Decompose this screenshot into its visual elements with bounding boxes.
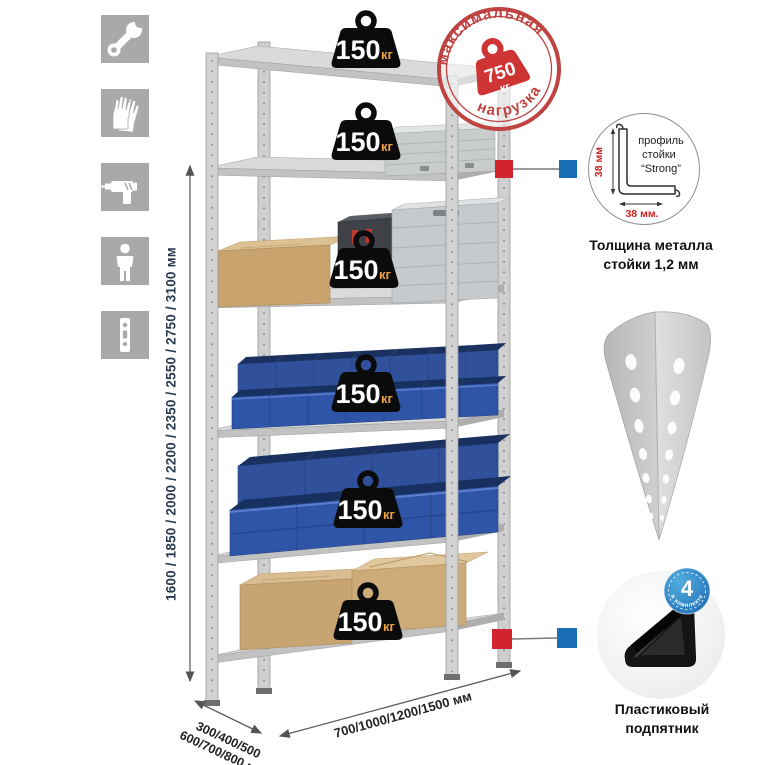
badge-value: 150 xyxy=(333,255,378,285)
badge-unit: кг xyxy=(379,267,392,282)
profile-label-2: стойки xyxy=(642,149,676,161)
profile-label-1: профиль xyxy=(638,135,684,147)
callout-blue-square-top xyxy=(559,160,577,178)
post-profile-callout: 38 мм 38 мм. профиль стойки “Strong” xyxy=(588,113,700,225)
quantity-value: 4 xyxy=(681,576,694,601)
callout-red-square-bottom xyxy=(492,629,512,649)
callout-red-square-top xyxy=(495,160,513,178)
profile-dim-vertical: 38 мм xyxy=(593,147,605,177)
badge-value: 150 xyxy=(335,35,380,65)
badge-unit: кг xyxy=(381,139,394,154)
profile-dim-horizontal: 38 мм. xyxy=(625,208,658,220)
profile-label-3: “Strong” xyxy=(641,163,681,175)
product-infographic: 1600 / 1850 / 2000 / 2200 / 2350 / 2550 … xyxy=(0,0,765,765)
load-badge-shelf5: 150 кг xyxy=(320,468,416,532)
badge-unit: кг xyxy=(381,391,394,406)
callout-blue-square-bottom xyxy=(557,628,577,648)
corner-post-image xyxy=(595,300,721,550)
badge-unit: кг xyxy=(381,47,394,62)
badge-unit: кг xyxy=(383,507,396,522)
badge-value: 150 xyxy=(337,495,382,525)
quantity-badge: 4 в комплекте xyxy=(663,567,711,615)
badge-value: 150 xyxy=(335,127,380,157)
badge-value: 150 xyxy=(335,379,380,409)
load-badge-shelf1: 150 кг xyxy=(318,8,414,72)
load-badge-shelf3: 150 кг xyxy=(316,228,412,292)
badge-unit: кг xyxy=(383,619,396,634)
load-badge-shelf2: 150 кг xyxy=(318,100,414,164)
load-badge-shelf4: 150 кг xyxy=(318,352,414,416)
load-badge-shelf6: 150 кг xyxy=(320,580,416,644)
badge-value: 150 xyxy=(337,607,382,637)
